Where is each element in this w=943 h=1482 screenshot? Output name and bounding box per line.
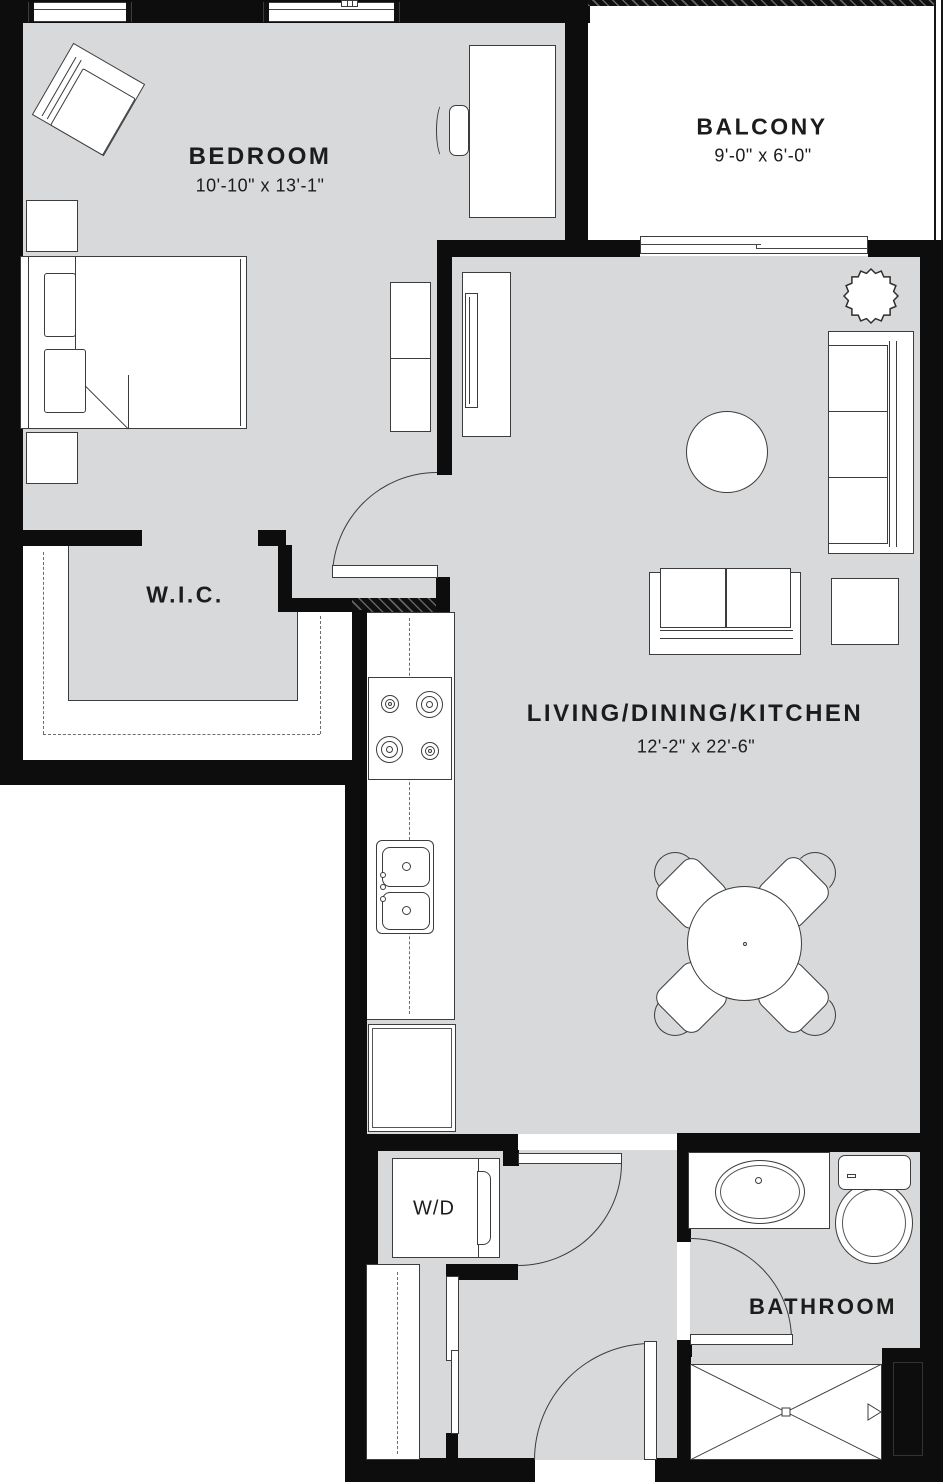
- wall: [278, 545, 292, 601]
- floor-wic: [68, 545, 297, 700]
- window-icon: [28, 2, 132, 22]
- laundry-label: W/D: [413, 1198, 455, 1221]
- wall: [446, 1433, 458, 1460]
- cooktop-icon: [368, 677, 452, 780]
- bedroom-label: BEDROOM: [189, 143, 332, 171]
- closet-rod-icon: [320, 616, 321, 734]
- loveseat-back: [660, 638, 793, 639]
- wall: [565, 0, 588, 256]
- closet-rod-icon: [43, 552, 44, 734]
- side-table-icon: [831, 578, 899, 645]
- toilet-icon: [835, 1182, 913, 1264]
- bedroom-door-leaf: [332, 565, 438, 578]
- dresser-icon: [390, 282, 431, 432]
- wall: [278, 598, 358, 612]
- wall: [360, 1150, 378, 1264]
- desk-chair-icon: [449, 105, 469, 156]
- balcony-edge: [588, 0, 936, 6]
- wic-shelf-edge: [297, 610, 298, 701]
- wall: [345, 760, 367, 1482]
- bathroom-door-leaf: [690, 1334, 793, 1345]
- wall: [868, 240, 943, 257]
- balcony-railing: [934, 0, 943, 240]
- nightstand-icon: [26, 432, 78, 484]
- entry-closet: [366, 1264, 420, 1460]
- living-label: LIVING/DINING/KITCHEN: [527, 700, 864, 728]
- pillow: [44, 273, 76, 337]
- bathroom-label: BATHROOM: [749, 1294, 897, 1320]
- desk-chair-back: [436, 103, 450, 158]
- sliding-door-icon: [640, 236, 868, 254]
- floor-wic-entry: [142, 530, 258, 545]
- wall: [16, 530, 142, 546]
- wall: [920, 240, 943, 1482]
- nightstand-icon: [26, 200, 78, 252]
- loveseat-back: [660, 630, 793, 631]
- wic-shelf-right: [297, 610, 352, 760]
- dining-table-icon: [687, 886, 802, 1001]
- window-vent: [341, 0, 358, 7]
- balcony-label: BALCONY: [696, 114, 827, 141]
- wall: [503, 1150, 519, 1166]
- bed-icon: [28, 256, 247, 429]
- wall: [365, 1134, 518, 1151]
- coffee-table-icon: [686, 411, 768, 493]
- wall: [437, 240, 640, 257]
- tv-icon: [465, 293, 478, 408]
- living-dims: 12'-2" x 22'-6": [637, 737, 755, 758]
- sofa-icon: [828, 331, 914, 554]
- window-icon: [263, 2, 400, 22]
- vanity-sink-icon: [688, 1152, 830, 1229]
- refrigerator-icon: [368, 1024, 456, 1132]
- closet-rod-icon: [43, 734, 320, 735]
- wall: [0, 760, 367, 785]
- kitchen-sink-icon: [376, 840, 434, 934]
- wic-shelf-edge: [68, 700, 297, 701]
- loveseat-cushion: [660, 568, 726, 628]
- floor-plan: BEDROOM 10'-10" x 13'-1" BALCONY 9'-0" x…: [0, 0, 943, 1482]
- tv-console-icon: [462, 272, 511, 437]
- laundry-door-leaf: [518, 1153, 622, 1164]
- kitchen-counter: [365, 612, 455, 1020]
- wall: [436, 577, 450, 612]
- wall: [655, 1458, 943, 1482]
- desk-icon: [469, 45, 556, 218]
- chase-outline: [893, 1362, 923, 1456]
- closet-rod-icon: [397, 1272, 398, 1454]
- wall: [258, 530, 286, 546]
- shower-icon: [690, 1364, 882, 1460]
- entry-door-leaf: [644, 1341, 657, 1460]
- wic-shelf-edge: [68, 545, 69, 701]
- wall: [345, 1458, 535, 1482]
- toilet-tank: [838, 1155, 911, 1190]
- plant-icon: [841, 266, 901, 326]
- loveseat-cushion: [726, 568, 791, 628]
- sliding-door-icon: [451, 1350, 459, 1434]
- wall: [677, 1357, 691, 1460]
- wall: [437, 245, 452, 475]
- sliding-door-icon: [446, 1276, 459, 1361]
- wic-label: W.I.C.: [146, 582, 224, 609]
- bedroom-dims: 10'-10" x 13'-1": [196, 176, 325, 197]
- wall: [677, 1133, 940, 1152]
- pillow: [44, 349, 86, 413]
- balcony-dims: 9'-0" x 6'-0": [714, 146, 811, 167]
- wall: [352, 610, 367, 760]
